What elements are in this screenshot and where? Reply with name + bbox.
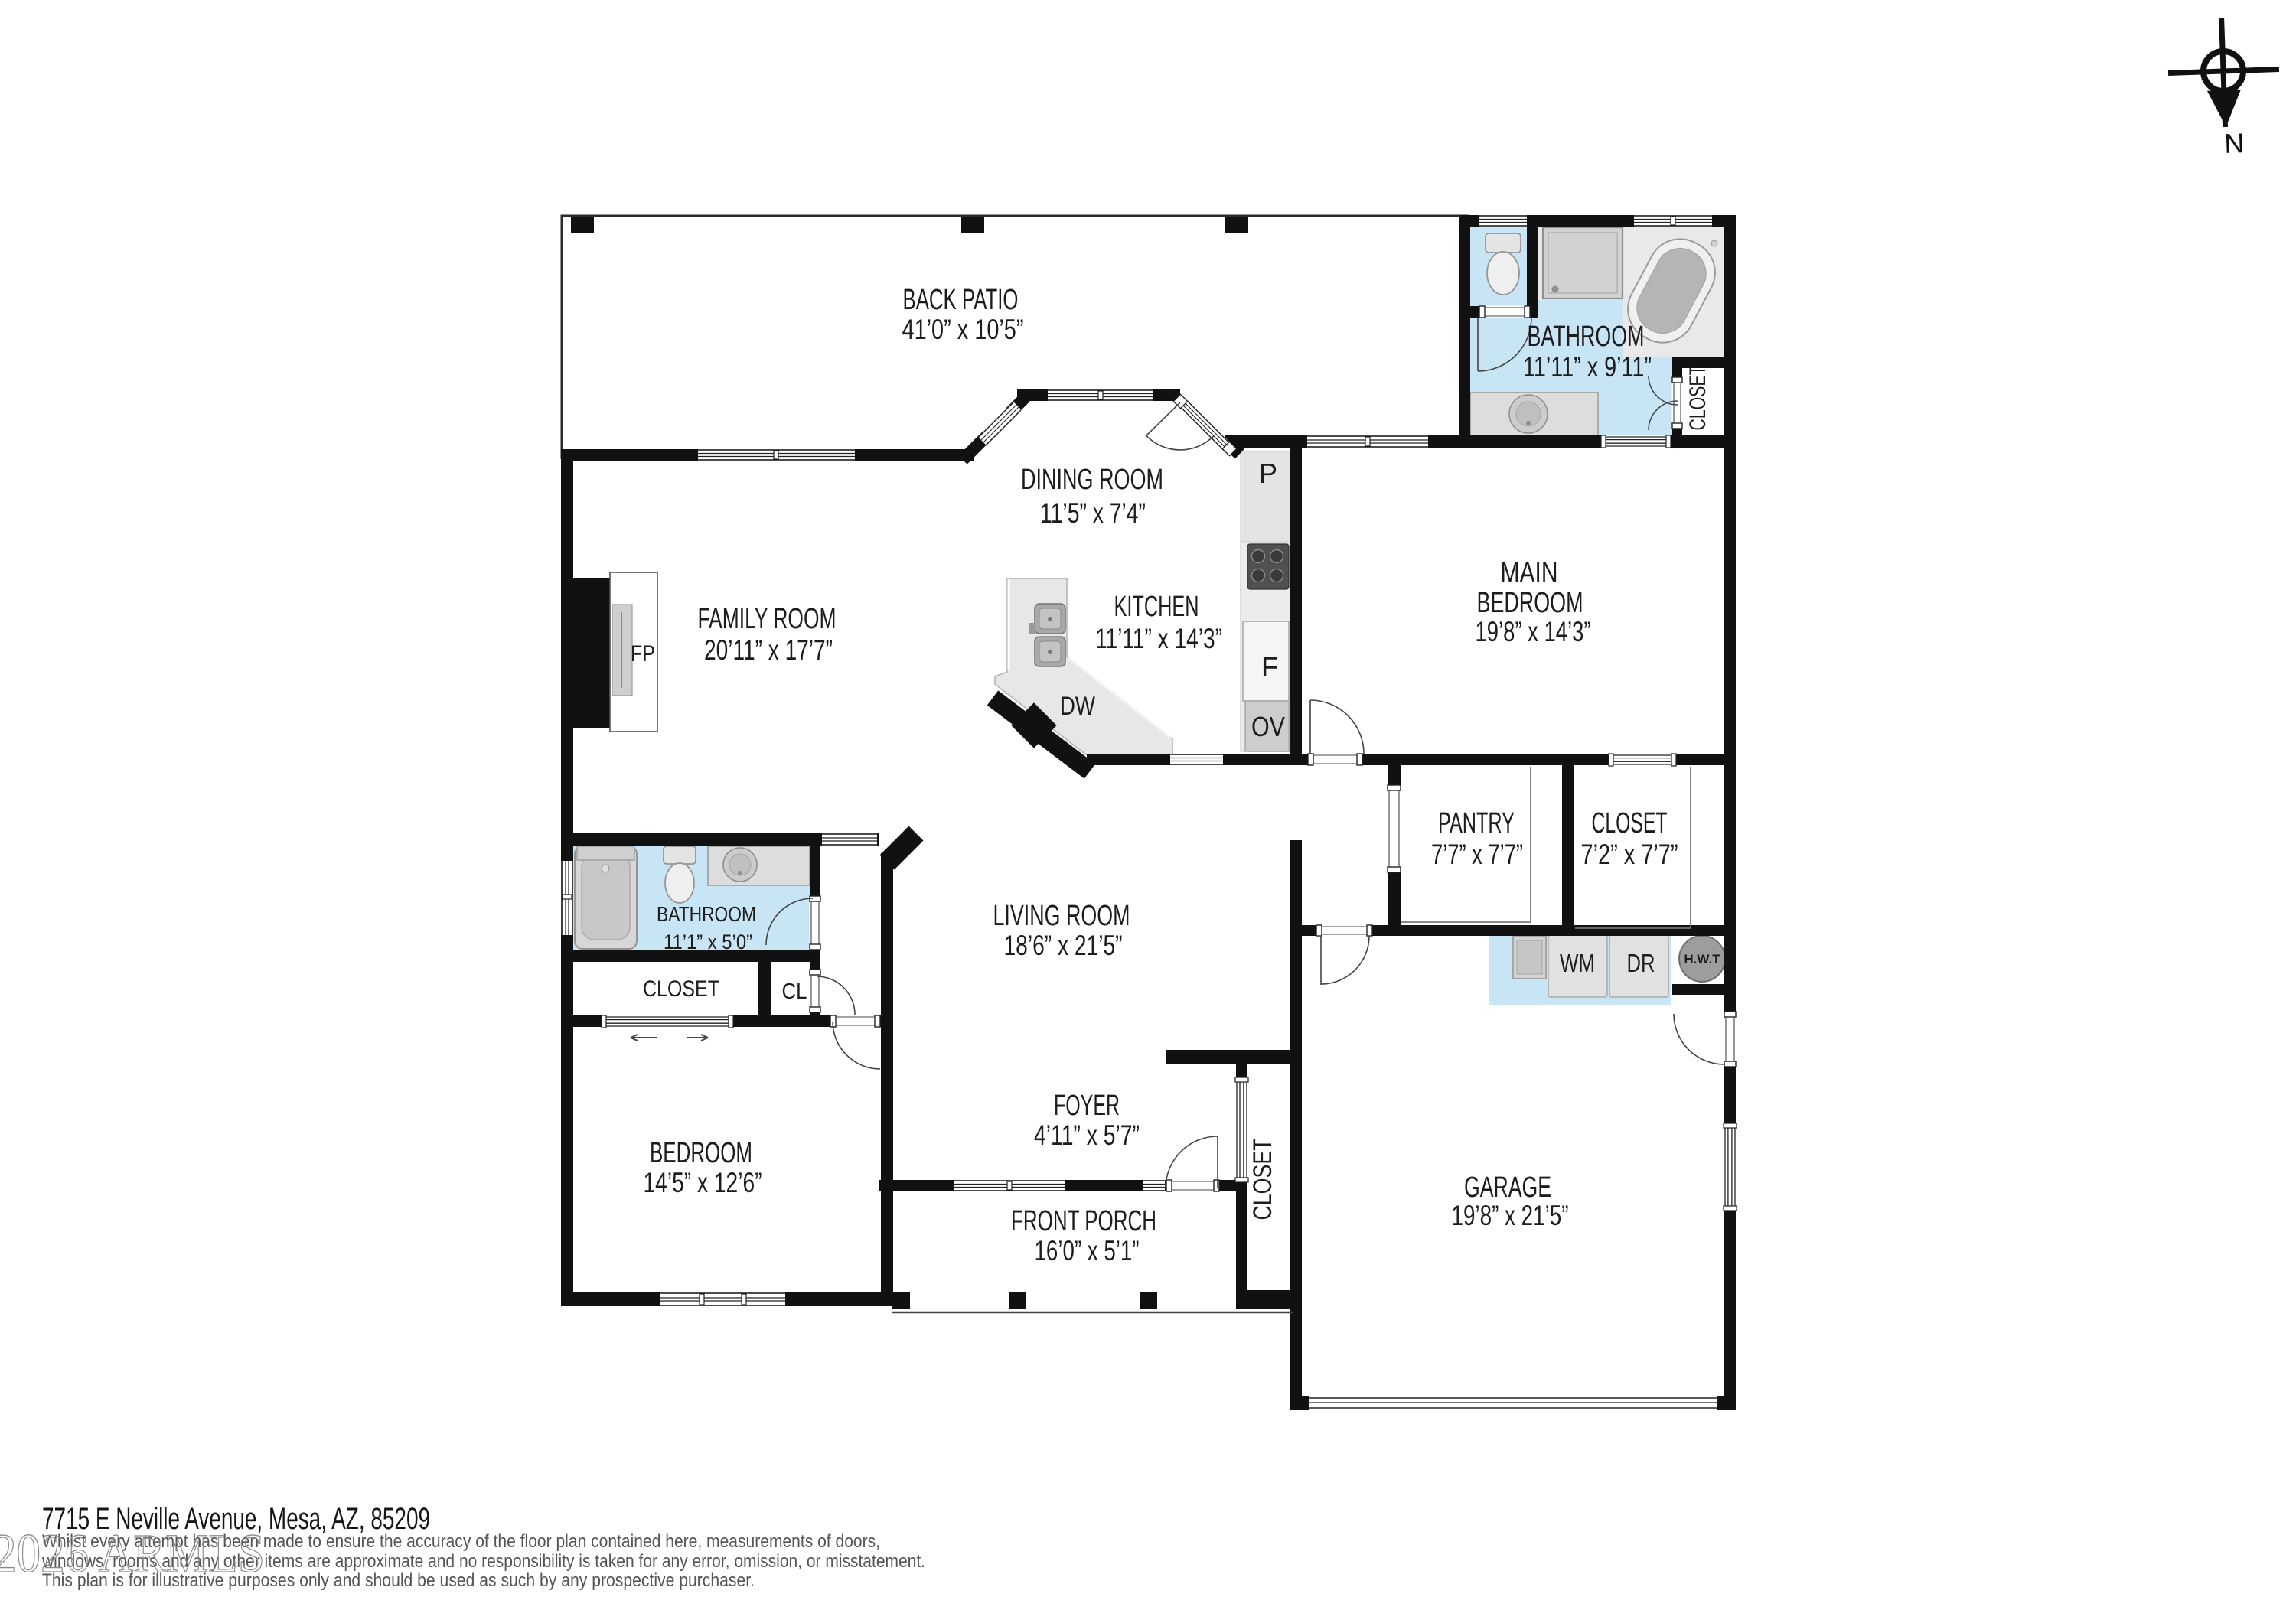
svg-text:FRONT PORCH: FRONT PORCH (1011, 1205, 1156, 1237)
svg-text:DINING ROOM: DINING ROOM (1021, 464, 1163, 496)
svg-text:GARAGE: GARAGE (1464, 1172, 1551, 1204)
svg-text:P: P (1259, 458, 1277, 489)
svg-text:16’0” x 5’1”: 16’0” x 5’1” (1035, 1235, 1140, 1266)
svg-text:CL: CL (782, 979, 807, 1004)
svg-text:2026 ARMLS: 2026 ARMLS (0, 1523, 265, 1584)
svg-text:MAIN: MAIN (1501, 557, 1558, 589)
svg-text:WM: WM (1560, 949, 1595, 977)
svg-text:H.W.T: H.W.T (1684, 952, 1720, 966)
svg-text:11’1” x 5’0”: 11’1” x 5’0” (664, 930, 752, 953)
svg-text:FAMILY ROOM: FAMILY ROOM (698, 603, 837, 635)
svg-text:19’8” x 21’5”: 19’8” x 21’5” (1452, 1200, 1569, 1231)
svg-text:CLOSET: CLOSET (1685, 366, 1711, 431)
svg-text:BATHROOM: BATHROOM (1528, 321, 1645, 353)
svg-text:FP: FP (631, 641, 655, 666)
svg-text:7’2” x 7’7”: 7’2” x 7’7” (1581, 839, 1678, 870)
svg-text:BEDROOM: BEDROOM (1477, 587, 1583, 619)
svg-text:4’11” x 5’7”: 4’11” x 5’7” (1034, 1119, 1140, 1151)
svg-text:18’6” x 21’5”: 18’6” x 21’5” (1004, 930, 1123, 961)
svg-text:N: N (2224, 127, 2245, 159)
svg-text:CLOSET: CLOSET (1592, 807, 1668, 839)
svg-text:11’11” x 14’3”: 11’11” x 14’3” (1095, 623, 1222, 654)
svg-text:PANTRY: PANTRY (1438, 807, 1515, 839)
svg-text:11’11” x 9’11”: 11’11” x 9’11” (1523, 351, 1652, 383)
svg-text:41’0” x 10’5”: 41’0” x 10’5” (902, 314, 1024, 345)
svg-text:FOYER: FOYER (1054, 1090, 1120, 1122)
svg-text:7’7” x 7’7”: 7’7” x 7’7” (1431, 839, 1523, 870)
svg-text:CLOSET: CLOSET (1248, 1139, 1277, 1221)
svg-text:F: F (1261, 651, 1278, 683)
svg-text:DR: DR (1627, 949, 1655, 977)
svg-text:KITCHEN: KITCHEN (1114, 591, 1199, 623)
svg-text:OV: OV (1251, 711, 1285, 742)
svg-text:BEDROOM: BEDROOM (650, 1137, 752, 1169)
svg-text:BACK PATIO: BACK PATIO (903, 284, 1019, 316)
svg-text:14’5” x 12’6”: 14’5” x 12’6” (644, 1167, 762, 1198)
svg-text:BATHROOM: BATHROOM (657, 902, 756, 926)
svg-text:20’11” x 17’7”: 20’11” x 17’7” (704, 634, 833, 666)
svg-text:19’8” x 14’3”: 19’8” x 14’3” (1476, 616, 1591, 647)
svg-text:11’5” x 7’4”: 11’5” x 7’4” (1040, 497, 1146, 529)
svg-text:DW: DW (1060, 692, 1095, 721)
svg-text:LIVING ROOM: LIVING ROOM (993, 900, 1130, 932)
svg-text:CLOSET: CLOSET (643, 976, 719, 1002)
